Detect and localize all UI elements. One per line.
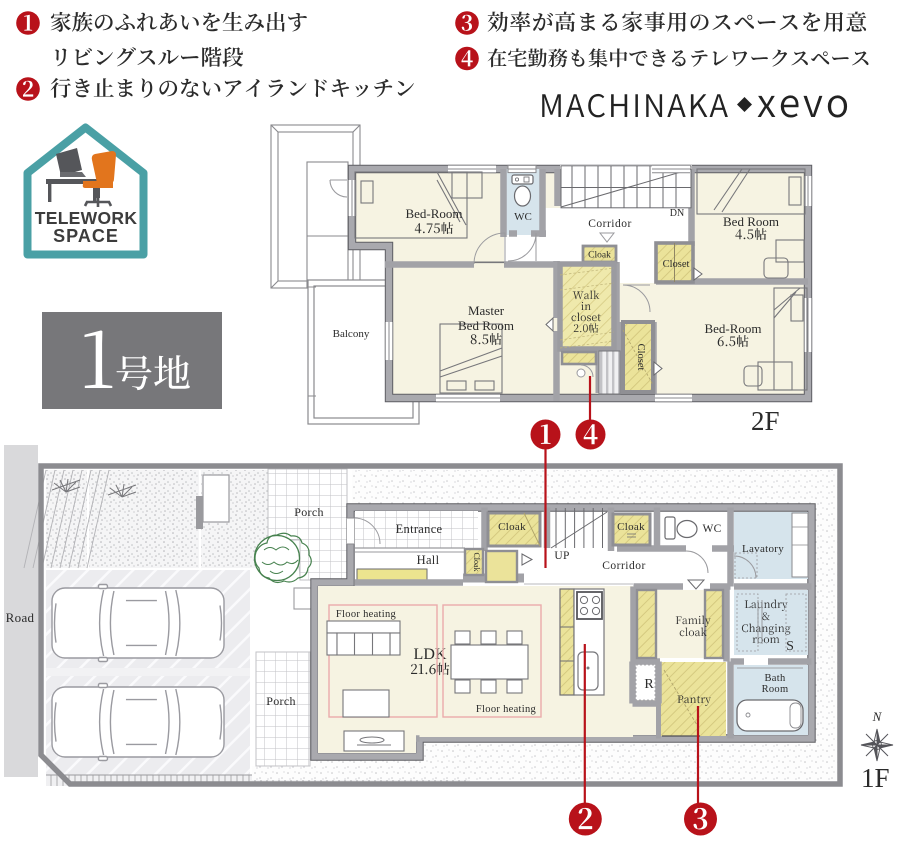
svg-text:LDK: LDK [414,646,447,663]
svg-text:TELEWORK: TELEWORK [35,208,138,228]
svg-text:Porch: Porch [294,505,324,519]
svg-text:Bed Room: Bed Room [723,214,779,229]
svg-text:N: N [872,709,883,724]
svg-text:1F: 1F [861,763,890,793]
svg-text:Road: Road [6,610,35,625]
svg-text:Cloak: Cloak [498,521,526,533]
svg-text:Bed Room: Bed Room [458,318,514,333]
svg-text:SPACE: SPACE [53,226,119,246]
svg-text:R: R [644,677,654,692]
svg-text:Closet: Closet [663,259,690,270]
svg-text:WC: WC [514,211,532,223]
svg-text:Room: Room [762,684,789,695]
svg-text:Closet: Closet [635,344,646,371]
svg-text:Cloak: Cloak [588,251,611,261]
svg-text:Floor heating: Floor heating [336,609,397,620]
svg-text:Bath: Bath [764,673,785,684]
svg-text:Hall: Hall [417,553,440,567]
svg-text:Entrance: Entrance [396,522,443,536]
svg-text:2F: 2F [751,406,780,436]
svg-text:Bed-Room: Bed-Room [405,206,462,221]
svg-text:UP: UP [554,550,569,562]
svg-text:DN: DN [670,208,684,219]
svg-text:Cloak: Cloak [617,521,645,533]
svg-text:Cloak: Cloak [472,552,481,571]
svg-text:Balcony: Balcony [333,328,370,340]
svg-text:S: S [786,639,794,654]
svg-text:Porch: Porch [266,694,296,708]
svg-text:WC: WC [702,523,721,535]
svg-text:Corridor: Corridor [602,560,646,572]
svg-text:Master: Master [468,303,505,318]
svg-text:Bed-Room: Bed-Room [704,321,761,336]
svg-text:Floor heating: Floor heating [476,704,537,715]
svg-text:Corridor: Corridor [588,218,632,230]
